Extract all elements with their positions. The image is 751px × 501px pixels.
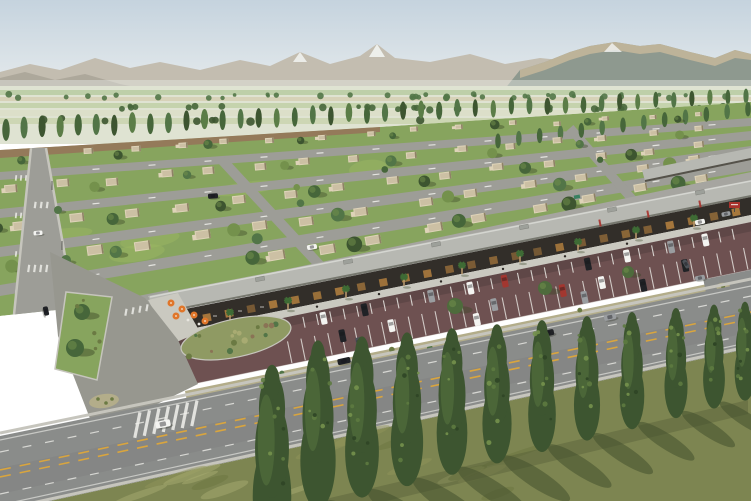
house	[125, 208, 140, 218]
yard-tree-highlight	[229, 225, 236, 232]
leaf-cluster	[682, 336, 685, 339]
distant-tree	[119, 106, 125, 112]
pedestrian	[316, 305, 318, 307]
crosswalk-bar	[32, 335, 35, 344]
poplar-tree	[382, 103, 388, 121]
yard-tree-highlight	[676, 131, 680, 135]
palm-shadow	[635, 239, 643, 241]
storefront-window	[665, 221, 674, 230]
storefront-window	[313, 291, 322, 300]
distant-tree	[569, 91, 576, 98]
house	[694, 125, 703, 131]
yard-tree-highlight	[111, 247, 117, 253]
windbreak-tree	[516, 131, 522, 146]
poplar-tree	[111, 115, 117, 136]
yard-tree-highlight	[309, 187, 315, 193]
car-glass	[211, 194, 215, 198]
aerial-rendering: Aerial rendering of a master-planned res…	[0, 0, 751, 501]
leaf-cluster	[623, 324, 627, 328]
yard-tree-highlight	[563, 198, 570, 205]
windbreak-tree	[704, 107, 710, 122]
crosswalk-bar	[38, 335, 41, 344]
house	[439, 171, 452, 179]
leaf-cluster	[719, 320, 722, 323]
leaf-cluster	[400, 443, 404, 447]
island-tree-highlight	[68, 341, 77, 350]
leaf-cluster	[542, 401, 547, 406]
house-roof	[456, 125, 462, 128]
house-wing	[329, 187, 333, 192]
house-roof	[220, 139, 227, 143]
leaf-cluster	[539, 354, 543, 358]
leaf-cluster	[417, 372, 420, 375]
poplar-tree	[256, 108, 262, 128]
poplar-tree	[545, 98, 551, 115]
distant-tree	[274, 93, 279, 98]
leaf-cluster	[276, 407, 280, 411]
house-roof	[179, 143, 186, 147]
house-shadow-side	[416, 126, 418, 131]
house	[232, 195, 246, 204]
yard-tree-highlight	[298, 137, 302, 141]
yard-tree-highlight	[348, 238, 356, 246]
tree-canopy	[741, 302, 749, 321]
leaf-cluster	[543, 355, 547, 359]
house-roof	[650, 131, 657, 135]
leaf-cluster	[491, 367, 495, 371]
leaf-cluster	[311, 368, 315, 372]
leaf-cluster	[669, 349, 672, 352]
house-shadow-side	[515, 120, 517, 125]
tree-canopy	[264, 365, 279, 400]
leaf-cluster	[744, 329, 748, 333]
distant-tree	[102, 95, 107, 100]
leaf-cluster	[678, 382, 683, 387]
leaf-cluster	[320, 424, 325, 429]
house-roof	[506, 144, 514, 149]
tree-lit-side	[305, 368, 321, 451]
leaf-cluster	[327, 381, 332, 386]
leaf-cluster	[491, 385, 495, 389]
leaf-cluster	[445, 432, 448, 435]
yard-tree-highlight	[664, 159, 671, 166]
house-roof	[266, 139, 273, 143]
poplar-tree	[39, 115, 46, 137]
distant-tree	[212, 117, 219, 124]
house-wing	[452, 126, 456, 129]
leaf-cluster	[268, 451, 272, 455]
house-roof	[176, 204, 188, 212]
distant-tree	[369, 104, 376, 111]
umbrella-top	[204, 320, 206, 322]
leaf-cluster	[259, 384, 264, 389]
storefront-window	[246, 304, 255, 313]
leaf-cluster	[578, 372, 581, 375]
house-shadow-side	[227, 138, 229, 143]
yard-tree-highlight	[627, 150, 633, 156]
leaf-cluster	[447, 378, 450, 381]
leaf-cluster	[406, 355, 411, 360]
poplar-tree	[129, 112, 136, 133]
poplar-tree	[20, 117, 27, 139]
house-shadow-side	[325, 135, 327, 140]
yard-tree	[297, 199, 305, 207]
house-shadow-side	[607, 116, 609, 120]
poplar-tree	[183, 110, 189, 130]
house-roof	[57, 180, 68, 187]
yard-tree-highlight	[453, 215, 460, 222]
storefront-window	[555, 243, 564, 252]
leaf-cluster	[587, 381, 592, 386]
storefront-window	[467, 260, 476, 269]
tree-canopy	[446, 328, 458, 356]
distant-tree	[684, 93, 688, 97]
windbreak-tree	[579, 123, 585, 138]
distant-tree	[113, 92, 118, 97]
car-glass	[36, 231, 40, 234]
house	[649, 130, 658, 136]
poplar-tree	[57, 116, 64, 137]
palm-shadow	[403, 286, 411, 288]
leaf-cluster	[282, 427, 286, 431]
distant-tree	[64, 95, 69, 100]
house-wing	[351, 212, 355, 217]
yard-tree-highlight	[18, 157, 22, 161]
storefront-window	[269, 300, 278, 309]
yard-tree-highlight	[585, 119, 589, 123]
poplar-tree	[328, 106, 334, 125]
house-roof	[650, 116, 655, 118]
leaf-cluster	[356, 418, 360, 422]
house	[406, 152, 417, 159]
leaf-cluster	[739, 376, 743, 380]
windbreak-tree	[662, 112, 668, 127]
leaf-cluster	[457, 351, 460, 354]
windbreak-tree	[620, 118, 626, 133]
palm-shadow	[693, 227, 701, 229]
storefront-window	[357, 282, 366, 291]
house	[649, 115, 656, 120]
palm-shadow	[461, 275, 469, 277]
crosswalk-bar	[37, 397, 40, 407]
sign-text-mark	[731, 204, 738, 205]
leaf-cluster	[545, 377, 549, 381]
tree-lit-side	[667, 326, 677, 381]
tree-canopy	[671, 308, 680, 329]
poplar-tree	[346, 103, 353, 122]
island-shrub	[94, 347, 97, 350]
leaf-cluster	[670, 364, 674, 368]
house-shadow-side	[186, 142, 188, 148]
median-shrub	[577, 308, 582, 313]
leaf-cluster	[676, 333, 679, 336]
windbreak-tree	[537, 128, 543, 143]
poplar-tree	[238, 109, 244, 129]
leaf-cluster	[626, 393, 629, 396]
house-roof	[126, 209, 139, 217]
distant-tree	[591, 105, 598, 112]
poplar-tree	[726, 90, 731, 105]
house-roof	[368, 132, 374, 135]
crosswalk-bar	[26, 335, 29, 344]
leaf-cluster	[738, 309, 742, 313]
poplar-tree	[201, 109, 208, 129]
windbreak-tree	[724, 104, 730, 119]
corner-island-shrub	[104, 401, 108, 405]
storefront-window	[489, 256, 498, 265]
house-wing	[10, 226, 14, 232]
distant-tree	[443, 93, 450, 100]
leaf-cluster	[627, 331, 632, 336]
house	[106, 178, 119, 187]
corner-island-shrub	[96, 397, 100, 401]
leaf-cluster	[625, 383, 629, 387]
median-tree-highlight	[449, 300, 456, 307]
distant-tree	[411, 105, 417, 111]
yard-tree-highlight	[216, 202, 221, 207]
poplar-tree	[689, 91, 694, 107]
house-roof	[349, 156, 358, 161]
leaf-cluster	[623, 340, 628, 345]
distant-tree	[356, 104, 361, 109]
windbreak-tree	[641, 115, 647, 130]
poplar-tree	[418, 100, 424, 118]
house	[544, 160, 556, 168]
house-roof	[203, 167, 213, 173]
house	[348, 155, 359, 163]
leaf-cluster	[442, 355, 445, 358]
poplar-tree	[473, 99, 478, 117]
leaf-cluster	[577, 338, 582, 343]
storefront-window	[445, 265, 454, 274]
house	[505, 143, 515, 150]
leaf-cluster	[589, 404, 593, 408]
yard-tree-highlight	[420, 177, 426, 183]
distant-tree	[220, 96, 224, 100]
leaf-cluster	[709, 378, 713, 382]
house-roof	[695, 126, 702, 130]
windbreak-tree	[745, 102, 751, 117]
leaf-cluster	[486, 440, 491, 445]
house-roof	[299, 158, 309, 164]
leaf-cluster	[452, 360, 456, 364]
island-shrub	[75, 304, 79, 308]
leaf-cluster	[715, 326, 720, 331]
house-roof	[554, 138, 562, 143]
house-roof	[132, 147, 140, 151]
distant-tree	[416, 95, 421, 100]
leaf-cluster	[455, 427, 459, 431]
leaf-cluster	[584, 356, 589, 361]
house-roof	[84, 149, 92, 153]
tree-lit-side	[623, 331, 634, 389]
house	[56, 178, 69, 187]
poplar-tree	[219, 110, 225, 130]
umbrella-top	[170, 302, 172, 304]
corner-island-shrub	[110, 397, 114, 401]
pedestrian	[378, 293, 380, 295]
pedestrian	[502, 268, 504, 270]
palm-shadow	[577, 251, 585, 253]
distant-tree	[347, 92, 352, 97]
yard-tree-highlight	[108, 214, 114, 220]
leaf-cluster	[577, 334, 580, 337]
house	[69, 212, 84, 222]
house-roof	[233, 196, 245, 203]
median-tree-highlight	[624, 268, 629, 273]
distant-tree	[409, 94, 416, 101]
yard-tree-highlight	[491, 121, 496, 126]
house-wing	[1, 188, 5, 193]
house-roof	[458, 146, 467, 151]
house	[367, 131, 376, 136]
house-wing	[172, 208, 176, 213]
distant-tree	[102, 117, 109, 124]
house-shadow-side	[655, 115, 657, 119]
house-shadow-side	[139, 146, 141, 152]
leaf-cluster	[261, 378, 266, 383]
poplar-tree	[2, 119, 9, 141]
poplar-tree	[310, 105, 316, 124]
house-roof	[407, 153, 416, 158]
house-roof	[5, 185, 16, 192]
house-wing	[489, 166, 493, 171]
distant-tree	[15, 95, 21, 101]
leaf-cluster	[308, 410, 311, 413]
house-roof	[319, 136, 326, 139]
distant-tree	[480, 94, 485, 99]
house-wing	[295, 161, 299, 165]
house-roof	[107, 179, 118, 185]
leaf-cluster	[352, 436, 356, 440]
distant-tree	[85, 93, 91, 99]
yard-tree-highlight	[332, 209, 339, 216]
leaf-cluster	[713, 317, 717, 321]
umbrella-top	[181, 308, 183, 310]
leaf-cluster	[402, 373, 407, 378]
leaf-cluster	[495, 419, 499, 423]
leaf-cluster	[487, 381, 492, 386]
yard-tree-highlight	[554, 179, 561, 186]
poplar-tree	[436, 102, 442, 120]
distant-tree	[385, 92, 391, 98]
poplar-tree	[364, 105, 370, 124]
yard-tree-highlight	[90, 183, 95, 188]
distant-tree	[193, 117, 201, 125]
tree-lit-side	[532, 341, 544, 406]
distant-tree	[471, 91, 477, 97]
windbreak-tree	[599, 120, 605, 135]
leaf-cluster	[365, 462, 368, 465]
house-roof	[162, 170, 172, 176]
leaf-cluster	[273, 414, 277, 418]
poplar-tree	[581, 96, 586, 113]
distant-tree	[218, 103, 225, 110]
storefront-window	[643, 225, 652, 234]
poplar-tree	[599, 95, 604, 111]
house-wing	[175, 145, 179, 149]
poplar-tree	[400, 101, 406, 119]
leaf-cluster	[536, 330, 540, 334]
storefront-window	[379, 278, 388, 287]
distant-tree	[426, 106, 433, 113]
distant-tree	[186, 104, 192, 110]
distant-tree	[128, 105, 134, 111]
patio-table	[198, 323, 201, 326]
house-shadow-side	[559, 121, 561, 126]
leaf-cluster	[713, 343, 716, 346]
tree-canopy	[582, 316, 592, 340]
house-roof	[70, 214, 83, 222]
tree-lit-side	[706, 321, 716, 372]
leaf-cluster	[622, 403, 626, 407]
house-wing	[158, 173, 162, 178]
yard-tree-highlight	[443, 192, 449, 198]
umbrella-top	[193, 314, 195, 316]
yard-tree-highlight	[204, 141, 209, 146]
leaf-cluster	[406, 367, 409, 370]
distant-tree	[246, 117, 255, 126]
leaf-cluster	[634, 390, 638, 394]
distant-tree	[206, 95, 212, 101]
leaf-cluster	[323, 358, 327, 362]
distant-tree	[319, 104, 327, 112]
tree-canopy	[355, 336, 369, 367]
yard-tree-highlight	[114, 151, 119, 156]
storefront-window	[621, 230, 630, 239]
leaf-cluster	[502, 394, 505, 397]
distant-tree	[549, 93, 556, 100]
house	[386, 176, 399, 185]
rendering-stage: Aerial rendering of a master-planned res…	[0, 0, 751, 501]
leaf-cluster	[679, 355, 681, 357]
house-wing	[454, 148, 458, 152]
palm-shadow	[345, 298, 353, 300]
palm-shadow	[519, 263, 527, 265]
windbreak-tree	[495, 134, 501, 149]
house-wing	[192, 235, 196, 241]
poplar-tree	[707, 90, 712, 105]
tree-canopy	[311, 340, 325, 372]
leaf-cluster	[281, 457, 285, 461]
yard-tree-highlight	[577, 141, 581, 145]
house	[265, 138, 274, 144]
yard-tree	[293, 184, 300, 191]
poplar-tree	[743, 89, 748, 104]
yard-tree	[597, 157, 603, 163]
house	[552, 137, 562, 144]
yard-tree-highlight	[184, 171, 188, 175]
house-roof	[411, 127, 417, 130]
house-wing	[521, 184, 525, 189]
poplar-tree	[617, 93, 622, 109]
yard-tree-highlight	[281, 162, 285, 166]
leaf-cluster	[366, 441, 370, 445]
house-roof	[256, 164, 266, 170]
crosswalk-bar	[31, 397, 34, 407]
distant-tree	[155, 94, 161, 100]
island-shrub	[92, 331, 96, 335]
poplar-tree	[147, 114, 153, 135]
house-wing	[641, 152, 645, 156]
storefront-window	[291, 296, 300, 305]
leaf-cluster	[716, 331, 720, 335]
poplar-tree	[509, 97, 514, 114]
house	[693, 141, 704, 148]
tree-lit-side	[258, 395, 275, 486]
leaf-cluster	[313, 413, 317, 417]
leaf-cluster	[326, 421, 329, 424]
